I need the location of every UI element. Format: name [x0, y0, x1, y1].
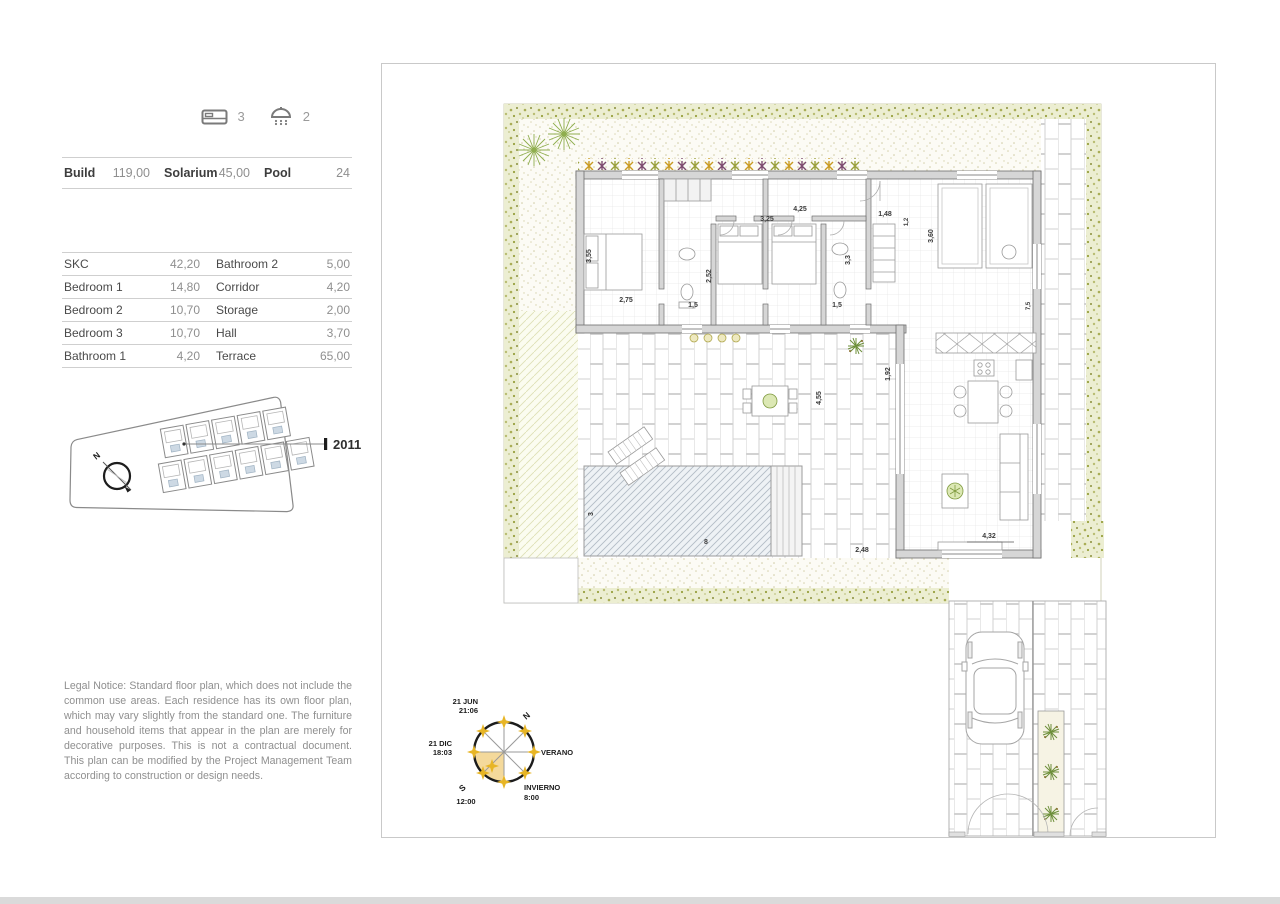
bed-icon	[201, 107, 228, 127]
summary-value: 45,00	[219, 166, 250, 180]
dim-label: 2,48	[855, 547, 869, 554]
winter-label: INVIERNO	[524, 783, 560, 792]
summer-label: VERANO	[541, 748, 573, 757]
room-label: Bathroom 1	[64, 349, 150, 363]
fridge	[1016, 360, 1032, 380]
capacity-row: 3 2	[60, 106, 352, 127]
pool	[584, 466, 802, 556]
table-row: SKC 42,20 Bathroom 2 5,00	[62, 253, 352, 276]
dim-label: 1,2	[904, 217, 910, 226]
bathroom-count: 2	[303, 109, 310, 124]
dim-label: 4,25	[793, 206, 807, 213]
dim-label: 1,5	[688, 302, 698, 309]
plant-icon	[848, 338, 864, 354]
flower-border	[578, 158, 861, 170]
summary-label: Solarium	[164, 166, 218, 180]
room-area: 42,20	[150, 257, 200, 271]
solstice-dec-time: 18:03	[433, 748, 452, 757]
solstice-jun-date: 21 JUN	[453, 697, 478, 706]
corner-step	[504, 558, 578, 603]
room-area: 10,70	[150, 326, 200, 340]
unit-ref-label: 2011	[333, 437, 361, 452]
summary-table: Build 119,00 Solarium 45,00 Pool 24	[62, 157, 352, 189]
shower-icon	[269, 106, 293, 127]
table-row: Bedroom 3 10,70 Hall 3,70	[62, 322, 352, 345]
pool-deck	[771, 466, 802, 556]
dim-label: 1,5	[832, 302, 842, 309]
dim-label: 7,5	[1026, 301, 1032, 310]
dim-label: 8	[704, 539, 708, 546]
storage-unit	[986, 184, 1032, 268]
room-label: Storage	[200, 303, 296, 317]
room-area: 4,20	[296, 280, 350, 294]
dim-label: 4,55	[816, 391, 823, 405]
summary-label: Build	[64, 166, 95, 180]
car	[962, 632, 1028, 744]
room-label: Bedroom 1	[64, 280, 150, 294]
lawn-strip	[519, 311, 578, 558]
wardrobe	[664, 179, 711, 201]
summary-value: 24	[336, 166, 350, 180]
page-edge	[0, 897, 1280, 904]
bedroom-count: 3	[238, 109, 245, 124]
dining-table	[968, 381, 998, 423]
storage-unit	[938, 184, 982, 268]
room-area: 4,20	[150, 349, 200, 363]
table-row: Bathroom 1 4,20 Terrace 65,00	[62, 345, 352, 368]
hedge-right	[1086, 104, 1101, 521]
sideboard	[938, 542, 1002, 550]
sofa	[1000, 434, 1028, 520]
dim-label: 4,32	[982, 533, 996, 540]
hedge-left	[504, 104, 519, 558]
room-area: 2,00	[296, 303, 350, 317]
solstice-dec-date: 21 DIC	[429, 739, 453, 748]
room-label: Bedroom 3	[64, 326, 150, 340]
solstice-jun-time: 21:06	[459, 706, 478, 715]
side-paving	[1041, 119, 1086, 521]
room-area: 14,80	[150, 280, 200, 294]
summary-label: Pool	[264, 166, 291, 180]
site-plan: N 2011	[62, 386, 364, 524]
room-area: 65,00	[296, 349, 350, 363]
room-areas-table: SKC 42,20 Bathroom 2 5,00 Bedroom 1 14,8…	[62, 252, 352, 368]
room-area: 3,70	[296, 326, 350, 340]
toilet	[681, 284, 693, 300]
room-label: SKC	[64, 257, 150, 271]
room-label: Hall	[200, 326, 296, 340]
south-label: S	[457, 782, 468, 794]
table-row: Bedroom 1 14,80 Corridor 4,20	[62, 276, 352, 299]
gravel-bottom	[578, 558, 949, 588]
dim-label: 3,25	[760, 216, 774, 223]
winter-time: 8:00	[524, 793, 539, 802]
room-area: 5,00	[296, 257, 350, 271]
hall-cabinet	[873, 224, 895, 282]
room-label: Bathroom 2	[200, 257, 296, 271]
room-label: Terrace	[200, 349, 296, 363]
dim-label: 3,55	[586, 249, 593, 263]
brochure-page: 3 2 Build 119,00 Solarium 45,00 Pool 24 …	[0, 0, 1280, 904]
north-label: N	[521, 710, 532, 722]
dim-label: 3,3	[845, 255, 852, 265]
toilet	[834, 282, 846, 298]
sink	[832, 243, 848, 255]
hedge-top	[504, 104, 1101, 119]
dim-label: 2,52	[706, 269, 713, 283]
hedge-bottom	[578, 588, 949, 603]
legal-notice: Legal Notice: Standard floor plan, which…	[64, 679, 352, 784]
sink	[679, 248, 695, 260]
kitchen-counter	[936, 333, 1036, 353]
room-label: Bedroom 2	[64, 303, 150, 317]
room-area: 10,70	[150, 303, 200, 317]
table-row: Bedroom 2 10,70 Storage 2,00	[62, 299, 352, 322]
dim-label: 1,92	[885, 367, 892, 381]
driveway	[949, 601, 1106, 837]
dim-label: 3,60	[928, 229, 935, 243]
dim-label: 1,48	[878, 211, 892, 218]
hob	[974, 360, 994, 376]
summary-value: 119,00	[113, 166, 150, 180]
noon-label: 12:00	[456, 797, 475, 806]
sun-diagram: 21 JUN 21:06 21 DIC 18:03 N VERANO S 12:…	[420, 688, 595, 828]
room-label: Corridor	[200, 280, 296, 294]
dim-label: 2,75	[619, 297, 633, 304]
dim-label: 3	[588, 512, 595, 516]
